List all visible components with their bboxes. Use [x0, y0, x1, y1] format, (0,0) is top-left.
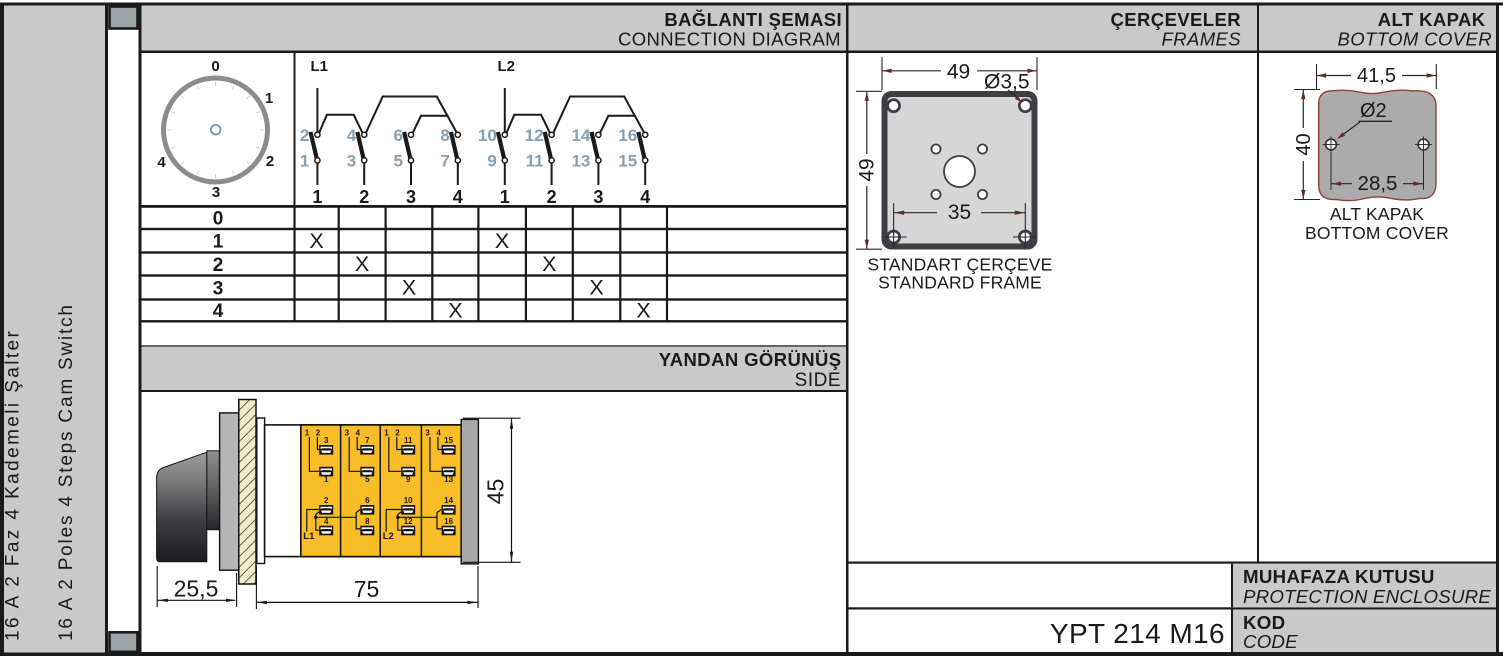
- svg-text:CONNECTION DIAGRAM: CONNECTION DIAGRAM: [618, 28, 841, 49]
- svg-text:8: 8: [365, 517, 370, 526]
- svg-text:3: 3: [324, 436, 329, 445]
- svg-text:3: 3: [212, 184, 220, 201]
- svg-text:3: 3: [345, 429, 350, 438]
- svg-text:FRAMES: FRAMES: [1162, 28, 1242, 49]
- svg-text:15: 15: [444, 436, 453, 445]
- svg-text:X: X: [636, 299, 650, 323]
- svg-text:1: 1: [312, 187, 322, 207]
- svg-text:ÇERÇEVELER: ÇERÇEVELER: [1111, 9, 1241, 30]
- svg-text:STANDART ÇERÇEVE: STANDART ÇERÇEVE: [867, 255, 1052, 275]
- svg-text:14: 14: [571, 126, 590, 145]
- svg-text:2: 2: [300, 126, 309, 145]
- svg-text:L2: L2: [383, 531, 394, 542]
- svg-text:13: 13: [571, 152, 590, 171]
- svg-text:L1: L1: [303, 531, 315, 542]
- svg-text:4: 4: [347, 126, 357, 145]
- svg-text:16: 16: [444, 517, 453, 526]
- svg-text:40: 40: [1293, 133, 1315, 155]
- svg-text:2: 2: [266, 153, 274, 170]
- svg-text:1: 1: [265, 90, 273, 107]
- svg-text:13: 13: [444, 475, 453, 484]
- svg-text:3: 3: [593, 187, 603, 207]
- svg-text:5: 5: [394, 152, 403, 171]
- svg-text:3: 3: [347, 152, 356, 171]
- svg-text:75: 75: [354, 576, 380, 602]
- svg-text:12: 12: [525, 126, 544, 145]
- svg-text:4: 4: [640, 187, 650, 207]
- svg-text:4: 4: [157, 154, 166, 171]
- svg-text:16 A 2 Poles 4 Steps Cam Switc: 16 A 2 Poles 4 Steps Cam Switch: [56, 303, 77, 641]
- svg-text:5: 5: [365, 475, 370, 484]
- svg-text:14: 14: [444, 496, 453, 505]
- svg-text:1: 1: [300, 152, 309, 171]
- svg-text:4: 4: [453, 187, 463, 207]
- svg-text:2: 2: [324, 496, 329, 505]
- svg-text:L2: L2: [498, 58, 516, 75]
- svg-text:7: 7: [440, 152, 449, 171]
- svg-text:3: 3: [406, 187, 416, 207]
- svg-text:2: 2: [316, 429, 321, 438]
- svg-text:49: 49: [856, 158, 879, 181]
- svg-text:MUHAFAZA KUTUSU: MUHAFAZA KUTUSU: [1243, 566, 1435, 587]
- svg-text:10: 10: [478, 126, 497, 145]
- svg-text:35: 35: [948, 201, 971, 224]
- svg-text:YANDAN GÖRÜNÜŞ: YANDAN GÖRÜNÜŞ: [659, 349, 842, 370]
- svg-text:6: 6: [394, 126, 403, 145]
- svg-text:Ø3,5: Ø3,5: [984, 71, 1030, 94]
- svg-text:25,5: 25,5: [174, 576, 219, 602]
- svg-text:BOTTOM COVER: BOTTOM COVER: [1305, 223, 1449, 243]
- svg-text:6: 6: [365, 496, 370, 505]
- svg-text:4: 4: [436, 429, 441, 438]
- svg-text:SIDE: SIDE: [795, 370, 841, 391]
- svg-text:ALT KAPAK: ALT KAPAK: [1330, 204, 1424, 224]
- svg-text:X: X: [495, 229, 509, 253]
- svg-text:2: 2: [547, 187, 557, 207]
- svg-text:STANDARD FRAME: STANDARD FRAME: [878, 273, 1042, 293]
- svg-text:X: X: [542, 252, 556, 276]
- svg-text:3: 3: [425, 429, 430, 438]
- svg-text:L1: L1: [311, 58, 329, 75]
- svg-text:CODE: CODE: [1243, 631, 1298, 652]
- svg-text:41,5: 41,5: [1357, 65, 1396, 87]
- svg-text:15: 15: [618, 152, 637, 171]
- svg-text:16: 16: [618, 126, 637, 145]
- svg-text:10: 10: [404, 496, 413, 505]
- svg-text:2: 2: [395, 429, 400, 438]
- svg-text:12: 12: [404, 517, 413, 526]
- svg-text:1: 1: [384, 429, 389, 438]
- svg-text:16 A 2 Faz 4 Kademeli Şalter: 16 A 2 Faz 4 Kademeli Şalter: [3, 329, 24, 641]
- svg-text:X: X: [355, 252, 369, 276]
- svg-text:X: X: [402, 276, 416, 300]
- svg-text:2: 2: [359, 187, 369, 207]
- svg-text:PROTECTION ENCLOSURE: PROTECTION ENCLOSURE: [1243, 586, 1491, 607]
- svg-text:0: 0: [211, 58, 219, 75]
- svg-text:4: 4: [324, 517, 329, 526]
- svg-text:Ø2: Ø2: [1360, 100, 1387, 122]
- svg-text:49: 49: [947, 61, 970, 84]
- svg-text:28,5: 28,5: [1358, 172, 1398, 195]
- svg-text:1: 1: [500, 187, 510, 207]
- svg-text:9: 9: [406, 475, 411, 484]
- svg-text:1: 1: [213, 232, 224, 253]
- svg-text:4: 4: [213, 301, 224, 322]
- svg-text:BAĞLANTI ŞEMASI: BAĞLANTI ŞEMASI: [664, 9, 842, 30]
- svg-text:7: 7: [365, 436, 370, 445]
- svg-text:1: 1: [305, 429, 310, 438]
- svg-text:9: 9: [487, 152, 496, 171]
- svg-text:YPT 214 M16: YPT 214 M16: [1050, 618, 1225, 649]
- svg-text:BOTTOM COVER: BOTTOM COVER: [1337, 28, 1492, 49]
- svg-text:X: X: [448, 299, 462, 323]
- svg-text:0: 0: [213, 208, 224, 229]
- svg-text:11: 11: [404, 436, 413, 445]
- svg-text:X: X: [309, 229, 323, 253]
- svg-text:2: 2: [213, 255, 224, 276]
- svg-text:X: X: [589, 276, 603, 300]
- svg-text:1: 1: [324, 475, 329, 484]
- svg-text:8: 8: [440, 126, 449, 145]
- svg-text:KOD: KOD: [1243, 612, 1285, 633]
- svg-text:3: 3: [213, 278, 224, 299]
- svg-text:11: 11: [526, 152, 544, 171]
- svg-text:ALT KAPAK: ALT KAPAK: [1378, 9, 1486, 30]
- svg-text:4: 4: [356, 429, 361, 438]
- svg-text:45: 45: [483, 479, 509, 505]
